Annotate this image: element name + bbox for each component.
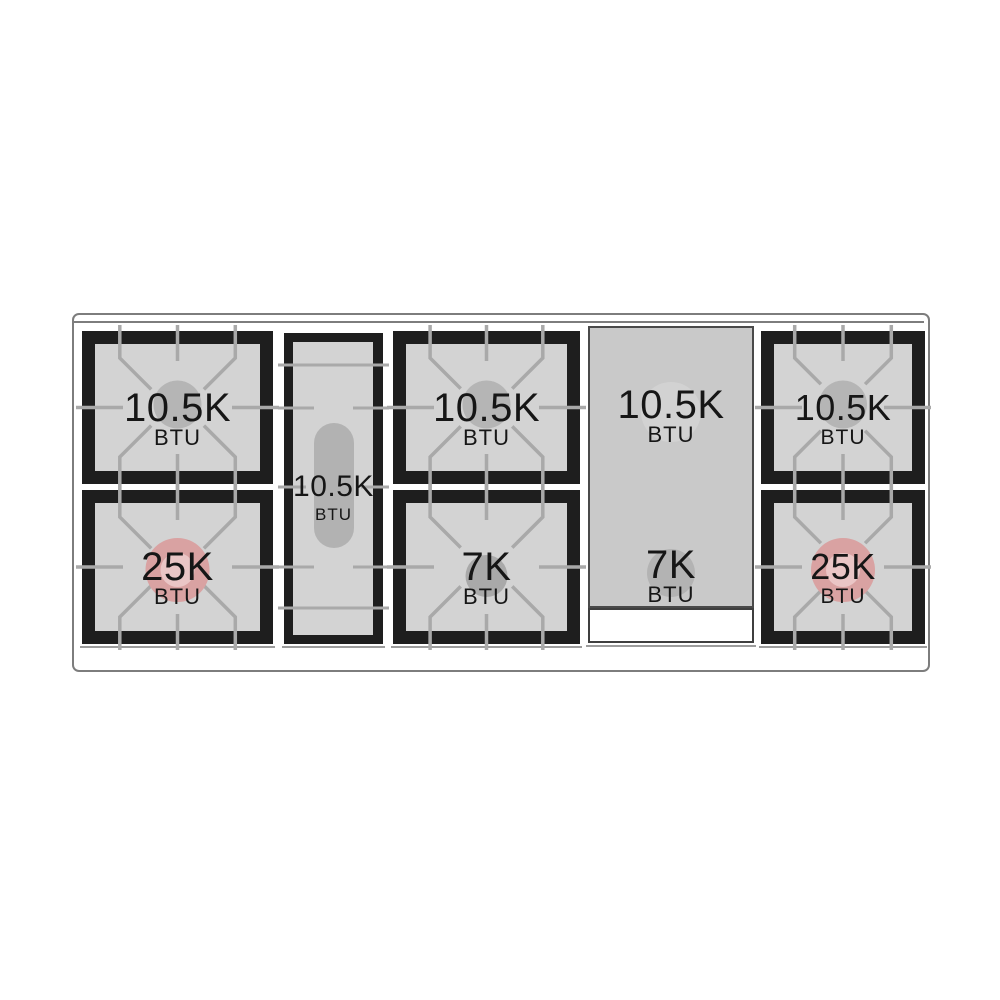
- burner-rating-label: 25K: [74, 547, 281, 587]
- burner-unit-label: BTU: [590, 424, 752, 446]
- burner-rating-label: 10.5K: [753, 388, 933, 428]
- section-base-line: [282, 646, 385, 648]
- burner-right-top: 10.5KBTU: [753, 323, 933, 492]
- burner-unit-label: BTU: [753, 427, 933, 449]
- burner-left-top: 10.5KBTU: [74, 323, 281, 492]
- burner-unit-label: BTU: [74, 427, 281, 449]
- burner-mid-top: 10.5KBTU: [385, 323, 588, 492]
- burner-rating-label: 25K: [753, 547, 933, 587]
- oval-burner-section: 10.5K BTU: [276, 323, 391, 652]
- burner-rating-label: 7K: [385, 547, 588, 587]
- range-cooktop-diagram: 10.5K BTU 10.5K BTU 7K BTU 10.5KBTU25KBT…: [0, 0, 1000, 1000]
- burner-right-bottom: 25KBTU: [753, 482, 933, 652]
- burner-unit-label: BTU: [276, 506, 391, 523]
- burner-rating-label: 7K: [590, 545, 752, 585]
- section-base-line: [586, 645, 756, 647]
- burner-rating-label: 10.5K: [74, 388, 281, 428]
- griddle-drip-tray: [588, 608, 754, 643]
- burner-unit-label: BTU: [753, 586, 933, 608]
- burner-unit-label: BTU: [385, 586, 588, 608]
- burner-rating-label: 10.5K: [276, 472, 391, 502]
- burner-unit-label: BTU: [590, 584, 752, 606]
- burner-rating-label: 10.5K: [590, 385, 752, 425]
- griddle-section: 10.5K BTU 7K BTU: [588, 326, 754, 608]
- burner-left-bottom: 25KBTU: [74, 482, 281, 652]
- burner-unit-label: BTU: [74, 586, 281, 608]
- burner-mid-bottom: 7KBTU: [385, 482, 588, 652]
- burner-rating-label: 10.5K: [385, 388, 588, 428]
- burner-unit-label: BTU: [385, 427, 588, 449]
